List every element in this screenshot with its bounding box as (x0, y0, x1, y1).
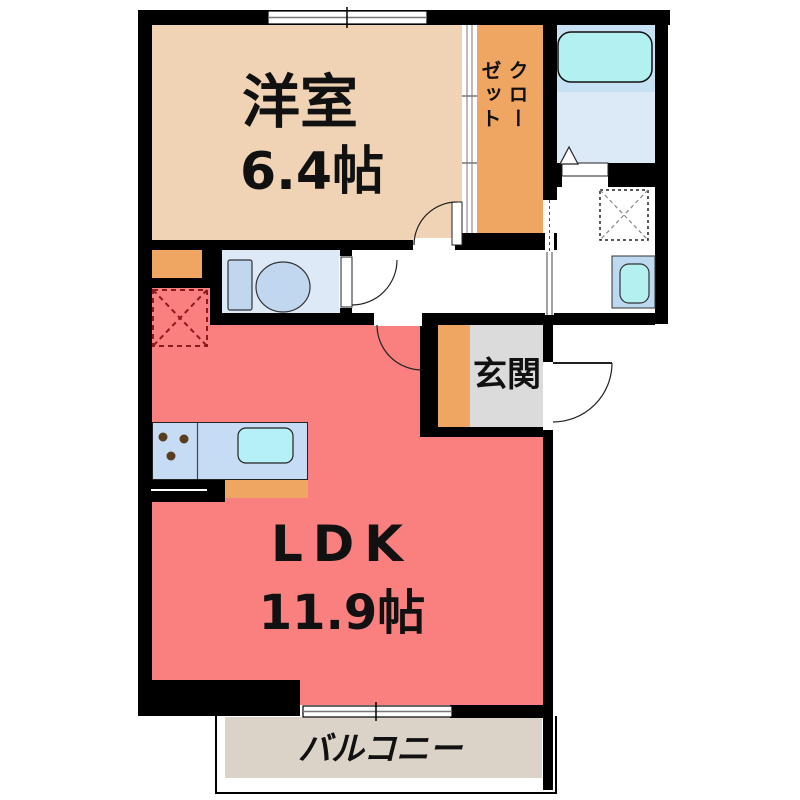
toilet (228, 260, 310, 312)
bathtub (558, 32, 652, 82)
bathroom-door (560, 147, 608, 176)
closet-partition (462, 25, 477, 233)
bedroom-window (268, 7, 427, 28)
balcony-label: バルコニー (230, 732, 530, 765)
toilet-door (339, 256, 397, 308)
stove-burners (159, 433, 189, 461)
closet-label-col2: ゼット (480, 46, 500, 146)
washing-machine-space (600, 190, 648, 240)
bedroom-label: 洋室 (150, 73, 450, 131)
bedroom-door (413, 202, 462, 252)
entrance-label: 玄関 (437, 358, 577, 392)
ldk-label: LDK (192, 519, 492, 569)
washroom-sliding-door (545, 200, 554, 315)
refrigerator-space (153, 290, 207, 346)
washroom-sink (612, 256, 655, 308)
ldk-door (374, 312, 422, 370)
kitchen-sink (198, 423, 294, 479)
ldk-size-label: 11.9帖 (192, 589, 492, 637)
bedroom-size-label: 6.4帖 (162, 146, 462, 198)
floor-plan: 洋室 6.4帖 クロー ゼット LDK 11.9帖 玄関 バルコニー (0, 0, 800, 800)
balcony-window (303, 702, 452, 721)
closet-label-col1: クロー (507, 46, 527, 146)
